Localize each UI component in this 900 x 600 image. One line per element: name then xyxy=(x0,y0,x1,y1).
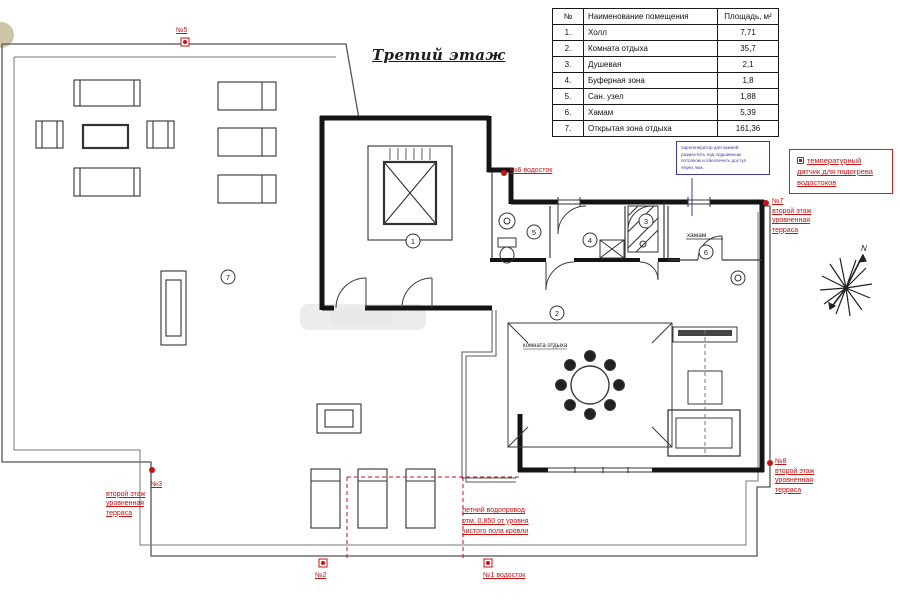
north-compass-icon: N xyxy=(820,244,872,316)
shower-tray xyxy=(628,206,658,252)
temp-sensor-note: температурный датчик для подогрева водос… xyxy=(789,149,893,194)
room-number: 7 xyxy=(226,273,230,282)
cell-number: 4. xyxy=(553,73,584,89)
cell-area: 7,71 xyxy=(718,25,779,41)
temp-sensor-icon xyxy=(797,157,804,164)
cell-area: 1,88 xyxy=(718,89,779,105)
summer-pipe-note: летний водопровод отм. 0,850 от уровня ч… xyxy=(462,506,529,538)
room-number: 4 xyxy=(588,236,592,245)
staircase xyxy=(368,146,452,240)
drain-label-7: №7 второй этаж уровненная терраса xyxy=(772,197,811,235)
north-label: N xyxy=(861,244,867,253)
cell-area: 2,1 xyxy=(718,57,779,73)
table-row: 4. Буферная зона 1,8 xyxy=(553,73,779,89)
cell-room-name: Душевая xyxy=(584,57,718,73)
cell-area: 1,8 xyxy=(718,73,779,89)
drain-label-8: №8 второй этаж уровненная терраса xyxy=(775,457,814,495)
header-room-name: Наименование помещения xyxy=(584,9,718,25)
drain-label-1: №1 водосток xyxy=(483,571,525,581)
cell-area: 5,39 xyxy=(718,105,779,121)
table-header-row: № Наименование помещения Площадь, м² xyxy=(553,9,779,25)
cell-room-name: Сан. узел xyxy=(584,89,718,105)
cell-room-name: Хамам xyxy=(584,105,718,121)
room-number-bubbles: 1 2 3 4 5 6 7 xyxy=(221,214,713,320)
equipment-box xyxy=(600,240,624,258)
cell-room-name: Холл xyxy=(584,25,718,41)
cell-number: 5. xyxy=(553,89,584,105)
cell-room-name: Открытая зона отдыха xyxy=(584,121,718,137)
header-number: № xyxy=(553,9,584,25)
lounge-label: комната отдыха xyxy=(523,343,568,349)
cell-number: 3. xyxy=(553,57,584,73)
drain-label-2: №2 xyxy=(315,571,326,581)
room-number: 1 xyxy=(411,237,415,246)
header-area: Площадь, м² xyxy=(718,9,779,25)
cell-number: 7. xyxy=(553,121,584,137)
room-number: 2 xyxy=(555,309,559,318)
drain-label-3: №3 второй этаж уровненная терраса xyxy=(106,480,164,518)
cell-number: 2. xyxy=(553,41,584,57)
wc-fixtures xyxy=(498,213,516,263)
room-number: 5 xyxy=(532,228,536,237)
steam-generator-note: парогенератор для камней разместить под … xyxy=(676,141,770,175)
table-row: 7. Открытая зона отдыха 161,36 xyxy=(553,121,779,137)
drain-label-6: №6 водосток xyxy=(510,166,552,176)
room-legend-table: № Наименование помещения Площадь, м² 1. … xyxy=(552,8,779,137)
floor-plan-drawing: 1 2 3 4 5 6 7 хамам комната отдыха xyxy=(0,0,900,600)
page-title: Третий этаж xyxy=(372,46,505,64)
table-row: 6. Хамам 5,39 xyxy=(553,105,779,121)
drain-label-5: №5 xyxy=(176,26,187,36)
drain-dot-icon xyxy=(149,170,773,473)
hamam-label: хамам xyxy=(687,232,707,239)
table-row: 2. Комната отдыха 35,7 xyxy=(553,41,779,57)
table-row: 3. Душевая 2,1 xyxy=(553,57,779,73)
cell-area: 35,7 xyxy=(718,41,779,57)
hamam-basin xyxy=(731,271,745,285)
cell-area: 161,36 xyxy=(718,121,779,137)
room-number: 3 xyxy=(644,217,648,226)
table-row: 1. Холл 7,71 xyxy=(553,25,779,41)
cell-room-name: Комната отдыха xyxy=(584,41,718,57)
cell-number: 6. xyxy=(553,105,584,121)
table-row: 5. Сан. узел 1,88 xyxy=(553,89,779,105)
cell-room-name: Буферная зона xyxy=(584,73,718,89)
room-number: 6 xyxy=(704,248,708,257)
cell-number: 1. xyxy=(553,25,584,41)
